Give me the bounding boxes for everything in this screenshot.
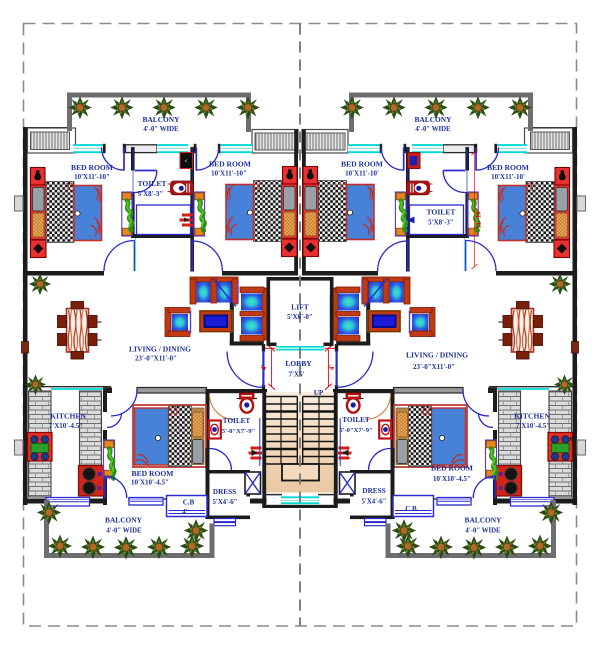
svg-text:10'X10'-4.5": 10'X10'-4.5" [131, 478, 169, 486]
svg-text:10'X11'-10": 10'X11'-10" [74, 173, 110, 181]
svg-text:DRESS: DRESS [362, 487, 385, 495]
svg-text:KITCHEN: KITCHEN [50, 411, 86, 420]
svg-text:BALCONY: BALCONY [143, 115, 181, 124]
svg-text:LIFT: LIFT [291, 302, 309, 311]
svg-text:TOILET: TOILET [427, 208, 456, 217]
svg-text:10'X11'-10': 10'X11'-10' [491, 173, 525, 181]
svg-text:BED ROOM: BED ROOM [431, 464, 473, 473]
svg-text:4': 4' [182, 509, 187, 516]
svg-text:5'X4'-6": 5'X4'-6" [213, 499, 238, 506]
svg-text:7'X10'-4.5": 7'X10'-4.5" [49, 422, 84, 430]
svg-text:BED ROOM: BED ROOM [487, 163, 529, 172]
svg-text:BALCONY: BALCONY [415, 115, 453, 124]
svg-text:<: < [185, 159, 188, 165]
svg-text:4'-0" WIDE: 4'-0" WIDE [143, 126, 179, 133]
svg-text:LOBBY: LOBBY [285, 359, 312, 368]
svg-text:5'-0"X7'-9": 5'-0"X7'-9" [339, 427, 372, 434]
svg-text:KITCHEN: KITCHEN [514, 411, 550, 420]
svg-text:5'-0"X7'-9": 5'-0"X7'-9" [222, 428, 255, 435]
svg-text:7'X5': 7'X5' [289, 370, 305, 378]
svg-text:BALCONY: BALCONY [105, 515, 143, 524]
svg-text:4': 4' [329, 365, 336, 370]
svg-text:BALCONY: BALCONY [465, 515, 503, 524]
svg-text:4'-0" WIDE: 4'-0" WIDE [465, 527, 501, 534]
svg-text:BED ROOM: BED ROOM [132, 469, 174, 478]
svg-text:BED ROOM: BED ROOM [341, 159, 383, 168]
svg-text:BED ROOM: BED ROOM [209, 159, 251, 168]
svg-text:TOILET: TOILET [138, 179, 167, 188]
svg-text:4'-0" WIDE: 4'-0" WIDE [415, 126, 451, 133]
svg-text:LIVING / DINING: LIVING / DINING [406, 350, 468, 359]
svg-text:LIVING / DINING: LIVING / DINING [129, 344, 191, 353]
svg-text:10'X11'-10": 10'X11'-10" [211, 170, 247, 178]
svg-text:10'X10'-4.5": 10'X10'-4.5" [433, 475, 471, 483]
svg-text:BED ROOM: BED ROOM [71, 163, 113, 172]
svg-text:11'-10": 11'-10" [476, 207, 483, 228]
svg-text:5'X8'-3": 5'X8'-3" [428, 218, 454, 226]
svg-text:4': 4' [261, 365, 268, 370]
svg-text:10'X11'-10': 10'X11'-10' [345, 170, 379, 178]
svg-text:23'-0"X11'-0": 23'-0"X11'-0" [135, 355, 177, 363]
svg-text:C.B: C.B [405, 505, 417, 513]
svg-text:C.B: C.B [183, 499, 195, 507]
svg-text:TOILET: TOILET [342, 416, 370, 424]
svg-text:5'X8'-3": 5'X8'-3" [138, 190, 164, 198]
svg-text:F: F [570, 436, 574, 443]
svg-text:UP: UP [314, 389, 324, 397]
svg-text:4'-0" WIDE: 4'-0" WIDE [106, 527, 142, 534]
svg-text:TOILET: TOILET [223, 417, 251, 425]
svg-text:DRESS: DRESS [213, 488, 236, 496]
svg-text:7'X10'-4.5": 7'X10'-4.5" [516, 422, 551, 430]
svg-text:23'-0"X11'-0": 23'-0"X11'-0" [413, 363, 455, 371]
svg-text:5'X4'-6": 5'X4'-6" [362, 499, 387, 506]
svg-text:5'X6'-0": 5'X6'-0" [287, 313, 313, 321]
